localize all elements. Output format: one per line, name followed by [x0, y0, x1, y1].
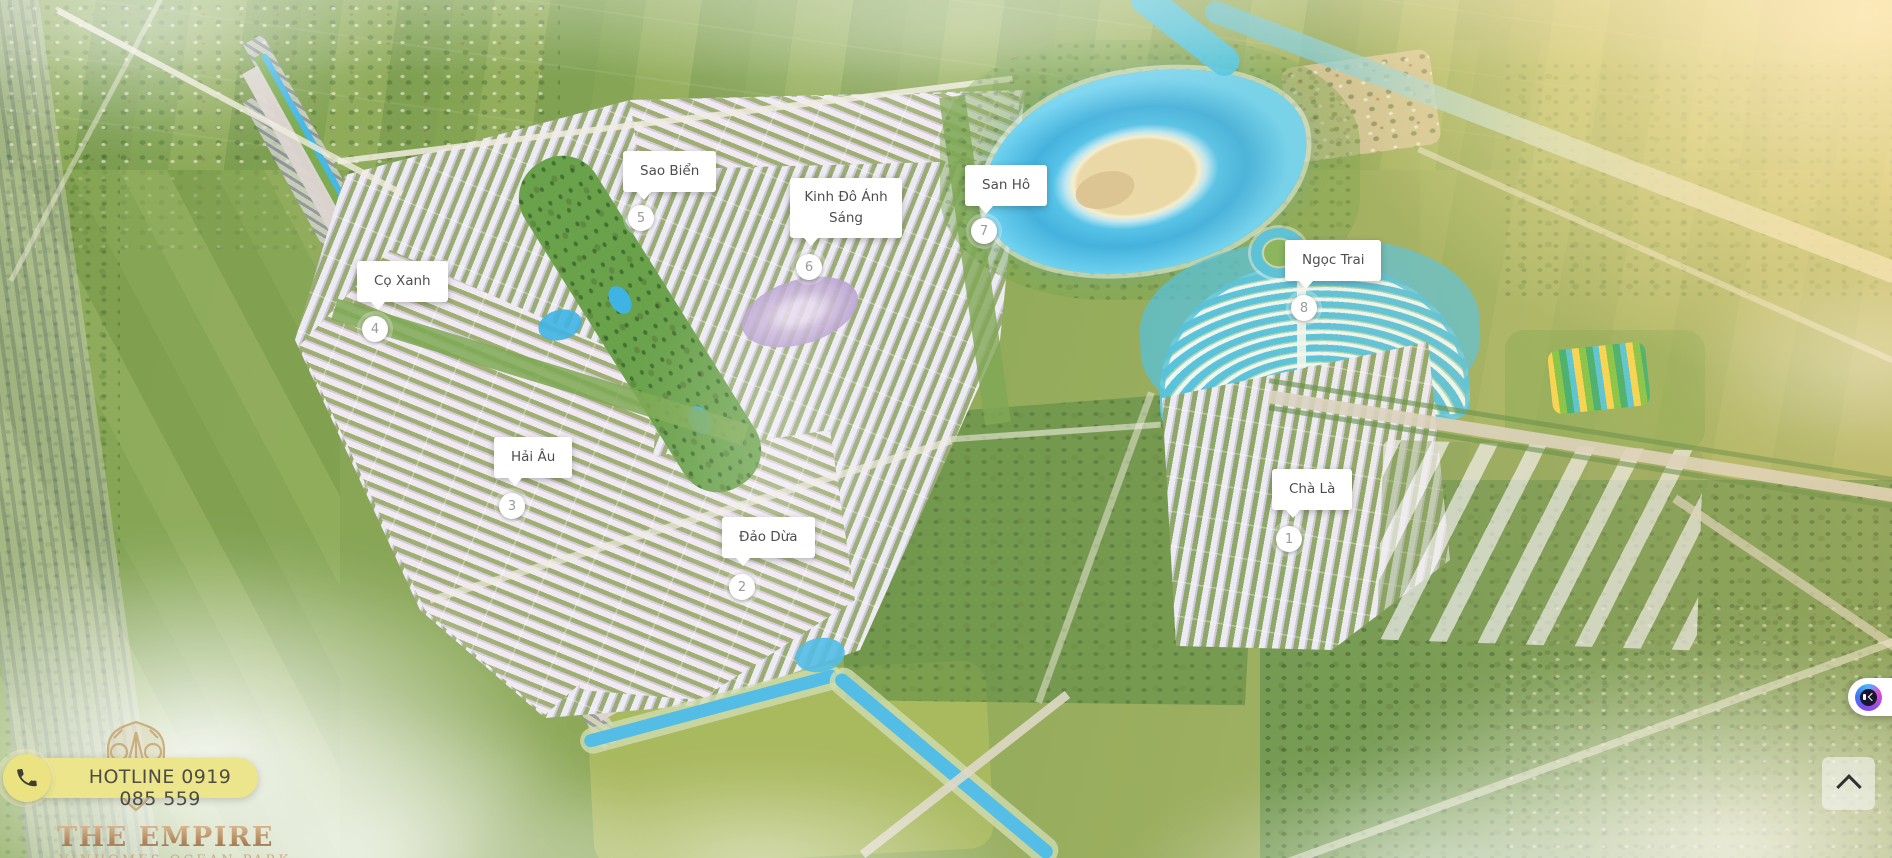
zone-label-san-ho[interactable]: San Hô [965, 165, 1047, 206]
zone-marker-5[interactable]: 5 [628, 205, 654, 231]
zone-label-dao-dua[interactable]: Đảo Dừa [722, 517, 815, 558]
aerial-map [0, 0, 1892, 858]
zone-label-co-xanh[interactable]: Cọ Xanh [357, 261, 448, 302]
chat-widget-icon-core [1860, 689, 1877, 706]
zone-label-text: Ngọc Trai [1302, 252, 1364, 268]
zone-label-text: San Hô [982, 177, 1030, 193]
zone-marker-number: 2 [738, 580, 746, 595]
zone-marker-2[interactable]: 2 [729, 574, 755, 600]
vignette [0, 0, 1892, 858]
chevron-up-icon [1836, 774, 1861, 799]
zone-marker-number: 7 [980, 224, 988, 239]
brand-subtitle: VINHOMES OCEAN PARK [59, 853, 291, 858]
brand-title: THE EMPIRE [57, 822, 274, 853]
zone-marker-number: 6 [805, 260, 813, 275]
chat-widget-button[interactable] [1848, 678, 1892, 716]
chat-icon-arrow [1867, 693, 1875, 701]
zone-marker-number: 4 [371, 322, 379, 337]
hotline-label: HOTLINE 0919 085 559 [68, 766, 252, 810]
zone-label-cha-la[interactable]: Chà Là [1272, 469, 1352, 510]
zone-label-kinh-do-anh-sang[interactable]: Kinh Đô Ánh Sáng [790, 178, 902, 238]
zone-label-ngoc-trai[interactable]: Ngọc Trai [1285, 240, 1381, 281]
zone-label-text: Cọ Xanh [374, 273, 431, 289]
zone-marker-7[interactable]: 7 [971, 218, 997, 244]
zone-label-text: Sao Biển [640, 163, 699, 179]
zone-marker-4[interactable]: 4 [362, 316, 388, 342]
phone-icon [3, 754, 51, 802]
zone-marker-3[interactable]: 3 [499, 493, 525, 519]
zone-marker-number: 3 [508, 499, 516, 514]
zone-label-sao-bien[interactable]: Sao Biển [623, 151, 716, 192]
zone-label-text: Kinh Đô Ánh Sáng [804, 189, 887, 226]
chat-widget-icon [1855, 684, 1882, 711]
masterplan-page: Chà Là 1 Đảo Dừa 2 Hải Âu 3 Cọ Xanh 4 Sa… [0, 0, 1892, 858]
chat-icon-dot [1863, 694, 1866, 700]
zone-marker-6[interactable]: 6 [796, 254, 822, 280]
zone-marker-8[interactable]: 8 [1291, 295, 1317, 321]
zone-label-text: Chà Là [1289, 481, 1335, 497]
zone-label-hai-au[interactable]: Hải Âu [494, 437, 572, 478]
zone-marker-number: 1 [1285, 532, 1293, 547]
zone-marker-1[interactable]: 1 [1276, 526, 1302, 552]
zone-label-text: Hải Âu [511, 449, 555, 465]
zone-label-text: Đảo Dừa [739, 529, 798, 545]
zone-marker-number: 8 [1300, 301, 1308, 316]
zone-marker-number: 5 [637, 211, 645, 226]
scroll-to-top-button[interactable] [1822, 757, 1875, 810]
